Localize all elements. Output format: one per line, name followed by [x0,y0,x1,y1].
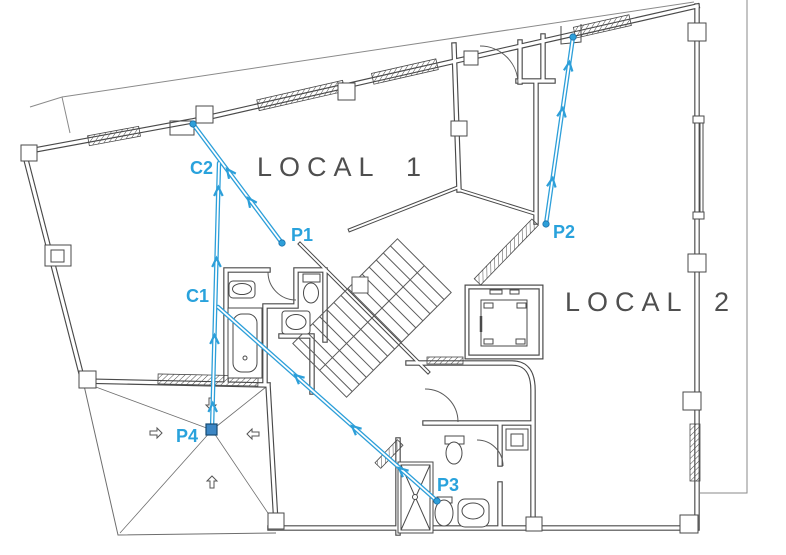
floor-plan-canvas: LOCAL 1 LOCAL 2 C2 [0,0,786,555]
slope-arrows [150,398,259,488]
right-wall-window [170,24,704,219]
walls [24,6,697,533]
room-label-local-2: LOCAL 2 [565,287,736,317]
label-p1: P1 [291,225,313,245]
label-c1: C1 [186,286,209,306]
label-c2: C2 [190,158,213,178]
room-label-local-1: LOCAL 1 [257,152,428,182]
label-p2: P2 [553,222,575,242]
window-hatches [88,15,700,481]
floor-plan-drawing: LOCAL 1 LOCAL 2 C2 [0,0,786,555]
camera-point-p4-marker [206,424,217,435]
elevator [481,290,527,346]
toilet-icon [303,274,320,282]
courtyard-patio [83,381,276,535]
label-p3: P3 [437,475,459,495]
label-p4: P4 [176,426,198,446]
door-arcs [268,46,518,466]
